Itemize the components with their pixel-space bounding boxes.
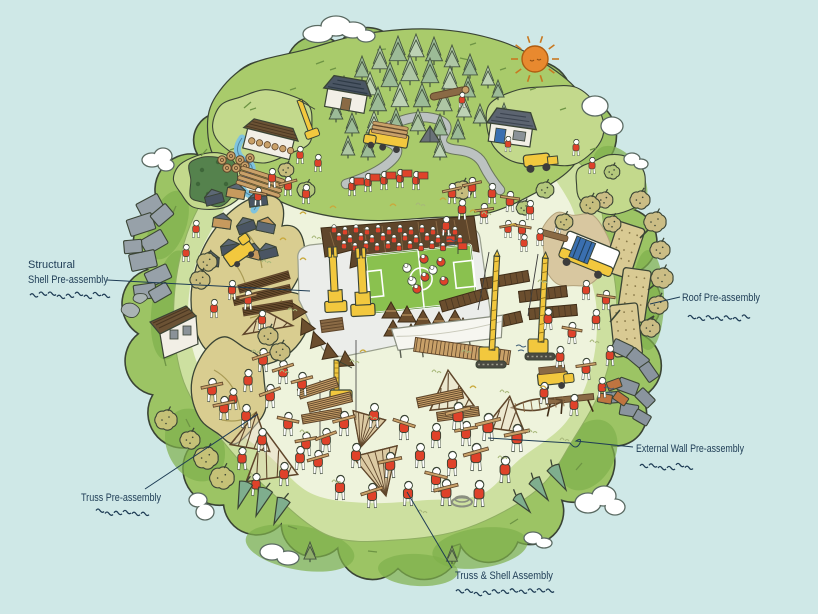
svg-text:Truss & Shell Assembly: Truss & Shell Assembly — [455, 570, 553, 582]
svg-text:Roof Pre-assembly: Roof Pre-assembly — [682, 292, 760, 304]
svg-text:External Wall Pre-assembly: External Wall Pre-assembly — [636, 443, 744, 455]
svg-text:Structural: Structural — [28, 259, 75, 271]
svg-text:Shell Pre-assembly: Shell Pre-assembly — [28, 274, 108, 286]
svg-text:Truss Pre-assembly: Truss Pre-assembly — [81, 492, 161, 504]
